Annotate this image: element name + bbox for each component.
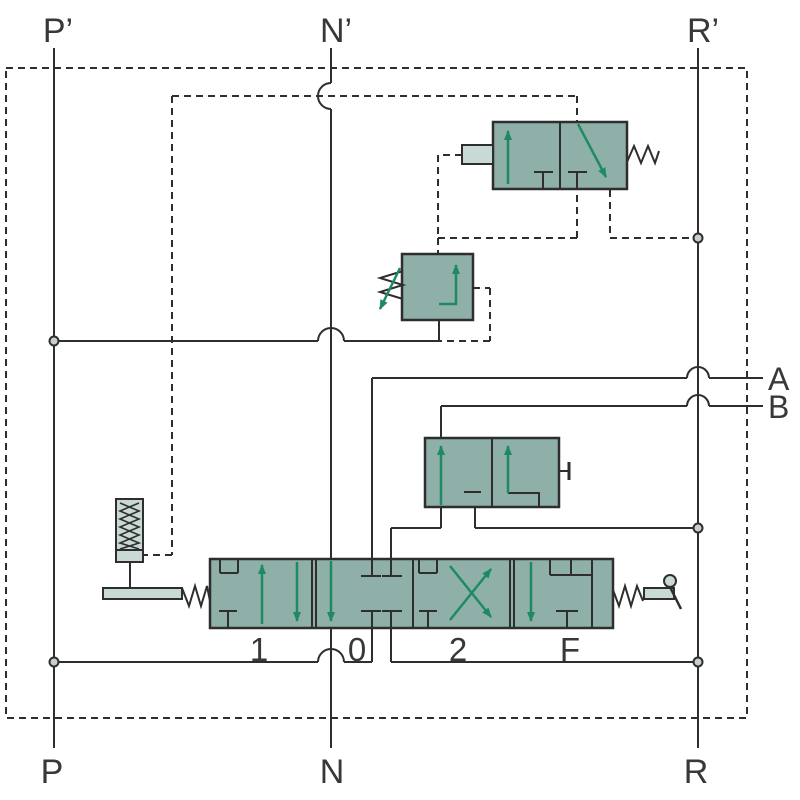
label-n: N — [320, 753, 345, 791]
schematic-canvas: P’ N’ R’ P N R A B 1 0 2 F — [0, 0, 800, 800]
junction-dot-r-plunger — [694, 524, 703, 533]
right-lever-rod — [644, 588, 674, 599]
label-r: R — [684, 753, 709, 791]
label-position-f: F — [560, 631, 580, 668]
main-valve-body — [210, 559, 613, 628]
p-to-regulator-line — [54, 320, 439, 341]
left-centering-spring — [182, 586, 210, 606]
label-r-prime: R’ — [687, 12, 719, 50]
pressure-reducing-valve — [380, 254, 473, 320]
main-control-valve — [210, 378, 613, 662]
label-n-prime: N’ — [320, 12, 352, 50]
plunger-valve-to-main-b — [391, 507, 441, 528]
label-position-0: 0 — [348, 631, 366, 668]
pilot-line-left — [143, 96, 172, 555]
labels: P’ N’ R’ P N R A B 1 0 2 F — [41, 12, 790, 791]
junction-dot-p-bottom — [50, 658, 59, 667]
right-lever-knob — [664, 575, 676, 587]
pilot-valve-return-spring — [627, 146, 659, 163]
pilot-drain-to-r-line — [610, 190, 698, 238]
main-valve-left-actuator — [103, 499, 210, 606]
port-a-line — [372, 367, 763, 378]
junction-dot-p-regulator — [50, 337, 59, 346]
plunger-valve — [425, 438, 569, 507]
main-valve-right-actuator — [613, 575, 681, 609]
junction-dot-r-pilot — [694, 234, 703, 243]
label-p: P — [41, 753, 64, 791]
label-port-b: B — [768, 389, 789, 425]
regulator-body — [402, 254, 473, 320]
pilot-valve-pilot-cap — [462, 145, 493, 164]
label-position-1: 1 — [250, 631, 268, 668]
hand-lever-bar — [103, 588, 182, 599]
label-p-prime: P’ — [43, 12, 73, 50]
circuit-diagram: P’ N’ R’ P N R A B 1 0 2 F — [0, 0, 800, 800]
pilot-valve-cap-line — [438, 155, 462, 238]
pilot-valve — [462, 122, 659, 189]
junction-dot-r-bottom — [694, 658, 703, 667]
pilot-loop-line — [438, 190, 577, 238]
right-centering-spring — [613, 586, 643, 606]
label-position-2: 2 — [449, 631, 467, 668]
plunger-valve-to-r — [475, 507, 698, 528]
